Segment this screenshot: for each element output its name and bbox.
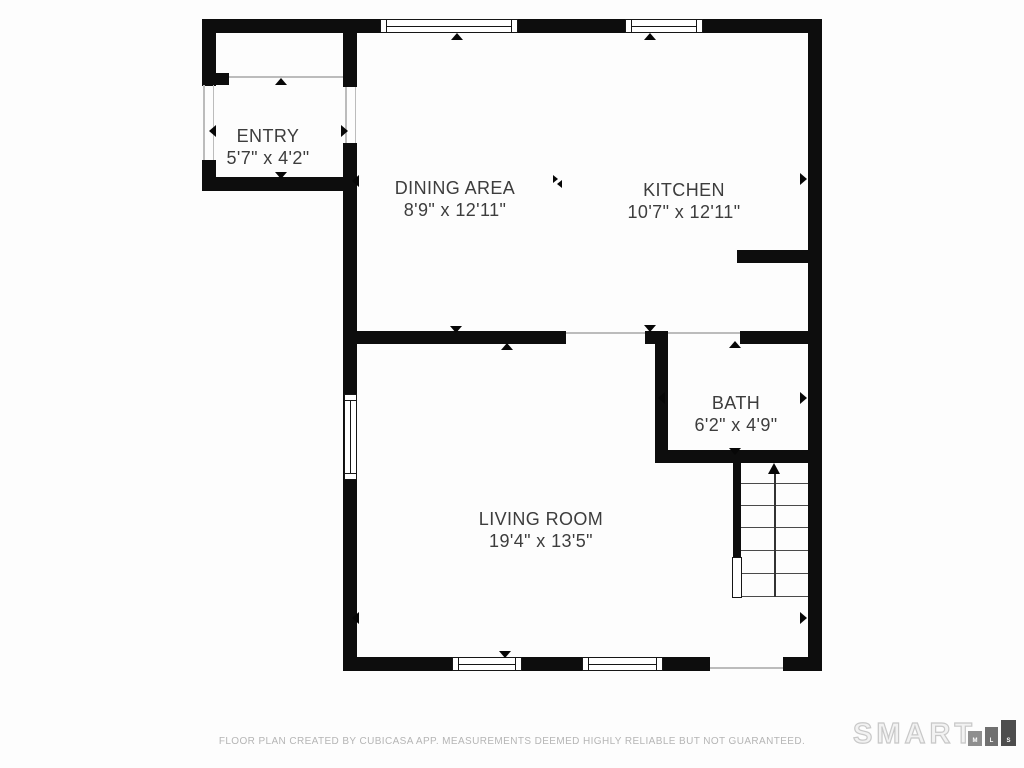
door-marker-icon (275, 172, 287, 179)
wall-porch-stub (202, 73, 229, 85)
room-name: KITCHEN (628, 179, 741, 201)
room-name: LIVING ROOM (479, 508, 603, 530)
room-dims: 19'4" x 13'5" (479, 530, 603, 552)
stair-newel-post (732, 557, 742, 598)
door-marker-icon (644, 325, 656, 332)
room-dims: 6'2" x 4'9" (694, 414, 777, 436)
wall-kitchen-stub (737, 250, 822, 263)
room-label-living: LIVING ROOM 19'4" x 13'5" (479, 508, 603, 552)
stair-direction-line (774, 473, 776, 597)
door-marker-icon (275, 78, 287, 85)
window-marker-icon (644, 33, 656, 40)
wall-marker-icon (658, 392, 665, 404)
opening-bath-door-line (668, 332, 740, 334)
room-label-entry: ENTRY 5'7" x 4'2" (226, 125, 309, 169)
door-marker-icon (450, 326, 462, 333)
wall-marker-icon (800, 392, 807, 404)
room-name: DINING AREA (395, 177, 515, 199)
wall-entry-bottom (202, 177, 357, 191)
opening-living-hall-line (566, 332, 645, 334)
room-dims: 10'7" x 12'11" (628, 201, 741, 223)
room-label-kitchen: KITCHEN 10'7" x 12'11" (628, 179, 741, 223)
window-living-bottom-2 (582, 657, 663, 671)
room-split-marker-icon (557, 180, 562, 188)
window-marker-icon (451, 33, 463, 40)
mls-box-s: S (1001, 720, 1016, 746)
opening-entry-left-outer (203, 85, 205, 160)
door-marker-icon (729, 448, 741, 455)
wall-entry-right-upper (343, 19, 357, 87)
door-marker-icon (501, 343, 513, 350)
door-marker-icon (209, 125, 216, 137)
wall-marker-icon (800, 612, 807, 624)
wall-marker-icon (800, 173, 807, 185)
wall-right (808, 19, 822, 671)
mls-box-l: L (985, 727, 998, 746)
window-living-bottom-1 (452, 657, 522, 671)
door-marker-icon (341, 125, 348, 137)
window-kitchen-top (625, 19, 703, 33)
smart-logo-text: SMART (853, 720, 976, 749)
window-marker-icon (499, 651, 511, 658)
room-label-dining: DINING AREA 8'9" x 12'11" (395, 177, 515, 221)
wall-bath-top-right (740, 331, 822, 344)
room-label-bath: BATH 6'2" x 4'9" (694, 392, 777, 436)
door-marker-icon (352, 175, 359, 187)
door-marker-icon (729, 341, 741, 348)
wall-stair-left (733, 463, 741, 558)
room-dims: 8'9" x 12'11" (395, 199, 515, 221)
staircase (741, 463, 808, 597)
wall-marker-icon (352, 612, 359, 624)
stair-up-arrow-icon (768, 463, 780, 474)
wall-bottom-right (783, 657, 822, 671)
opening-entry-right-outer (355, 87, 356, 143)
mls-box-m: M (968, 731, 982, 746)
smart-mls-logo: SMART M L S (853, 718, 1023, 750)
opening-entry-left-inner (213, 85, 214, 160)
room-dims: 5'7" x 4'2" (226, 147, 309, 169)
room-name: BATH (694, 392, 777, 414)
window-dining-top (380, 19, 518, 33)
room-name: ENTRY (226, 125, 309, 147)
opening-rear-line (710, 667, 783, 669)
window-living-left (344, 394, 357, 480)
floor-plan-page: ENTRY 5'7" x 4'2" DINING AREA 8'9" x 12'… (0, 0, 1024, 768)
